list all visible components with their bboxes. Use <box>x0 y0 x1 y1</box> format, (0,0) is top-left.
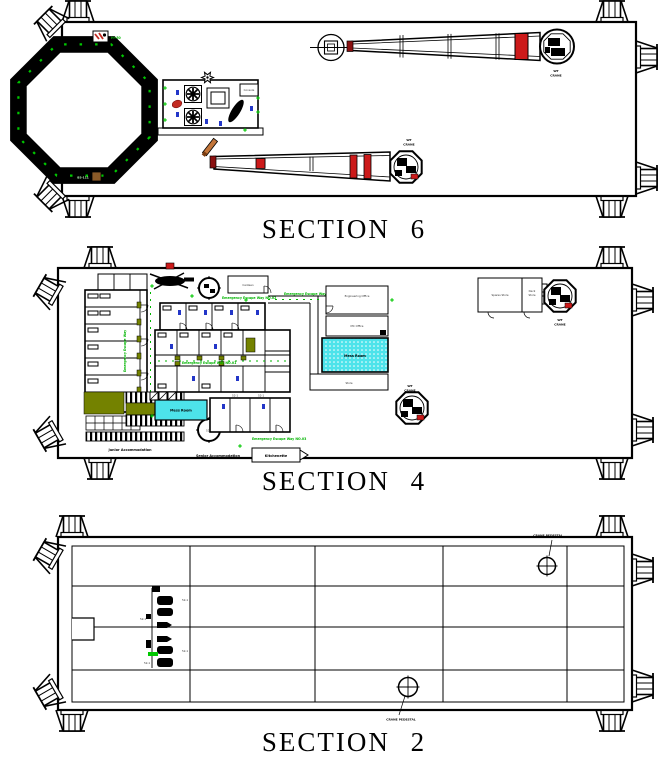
mooring-fitting <box>596 247 628 268</box>
boom-red-section <box>256 159 265 169</box>
mess-room-label: Mess Room <box>170 409 192 413</box>
section-6-title: SECTION 6 <box>262 214 426 244</box>
kitchenette-room: Kitchenette <box>252 448 308 462</box>
supply-fan-icon <box>185 86 202 103</box>
spares-store-label: Spares Store <box>491 293 508 297</box>
escape-way-label-vertical: Emergency Escape Way <box>123 329 127 372</box>
boom-tip <box>210 156 216 168</box>
mooring-fitting <box>56 710 88 731</box>
section-2: 52-1 52-1 52-1 52-1 CRANE PEDESTAL CRANE… <box>32 516 653 757</box>
crane-label: WT <box>407 384 413 388</box>
mooring-fitting <box>632 414 653 446</box>
svg-text:52-1: 52-1 <box>182 598 188 602</box>
valve <box>250 106 253 111</box>
mc-office-label: MC Office <box>351 324 364 328</box>
crane-label: CRANE <box>554 323 565 327</box>
junior-accommodation-label: Junior Accommodation <box>107 448 152 452</box>
mooring-fitting <box>62 196 94 217</box>
mooring-fitting <box>84 247 116 268</box>
store-label: Store <box>345 381 352 385</box>
cabinet-label: Console <box>244 88 255 92</box>
svg-text:52-1: 52-1 <box>258 394 264 398</box>
valve <box>205 119 208 124</box>
boom-red-section <box>350 155 357 178</box>
senior-accommodation-label: Senior Accommodation <box>196 454 241 458</box>
cabin-block-middle: Emergency Escape Way NO.01 <box>155 330 290 392</box>
mooring-fitting <box>84 458 116 479</box>
store-rooms: Spares Store Deck Store <box>478 278 547 318</box>
side-notch <box>72 618 94 640</box>
crane-turret <box>540 30 574 64</box>
section-2-title: SECTION 2 <box>262 727 426 757</box>
canteen-room: Canteen <box>228 276 271 293</box>
mooring-fitting <box>596 516 628 537</box>
deck-store-label: Store <box>528 293 535 297</box>
section-6: B5-111 H+50 Console <box>10 1 657 244</box>
mooring-fitting <box>636 162 657 194</box>
crane-pedestal-label: CRANE PEDESTAL <box>386 718 416 722</box>
mess-room-label: Mess Room <box>344 354 366 358</box>
mooring-fitting <box>632 284 653 316</box>
crane-label: CRANE <box>404 389 415 393</box>
crane-pedestal-label: CRANE PEDESTAL <box>533 534 563 538</box>
canteen-label: Canteen <box>242 283 254 287</box>
crane-label: CRANE <box>550 74 561 78</box>
escape-way-label: Emergency Escape Way NO.01 <box>182 361 236 365</box>
engineering-office-label: Engineering Office <box>345 294 370 298</box>
crane-turret <box>390 151 421 182</box>
boom-red-section <box>515 34 528 60</box>
mooring-fitting <box>62 1 94 22</box>
mooring-fitting <box>636 41 657 73</box>
helideck-code-label: B5-111 <box>77 176 88 180</box>
section-4: Emergency Escape Way <box>32 247 653 496</box>
escape-way-label: Emergency Escape Way NO.03 <box>252 437 306 441</box>
crane-label: WT <box>406 138 412 142</box>
crane-label: WT <box>553 69 559 73</box>
valve <box>176 90 179 95</box>
cabin-row-bottom: 52-1 52-1 <box>210 394 290 433</box>
mooring-fitting <box>596 196 628 217</box>
kitchenette-label: Kitchenette <box>265 454 288 458</box>
mess-room-left: Mess Room <box>155 400 207 420</box>
valve <box>219 121 222 126</box>
stairs <box>86 432 184 441</box>
boom-red-section <box>364 155 371 179</box>
mooring-fitting <box>596 710 628 731</box>
mooring-fitting <box>632 554 653 586</box>
svg-text:52-1: 52-1 <box>144 661 150 665</box>
helideck-marker-label: H+50 <box>111 36 122 40</box>
escape-way-label: Emergency Escape Way NO.02 <box>222 296 276 300</box>
svg-text:52-1: 52-1 <box>182 649 188 653</box>
mooring-fitting <box>632 670 653 702</box>
boom-tip <box>347 41 353 52</box>
mooring-fitting <box>56 516 88 537</box>
deck-plan-sheet: B5-111 H+50 Console <box>0 0 663 760</box>
deck-box <box>92 172 101 181</box>
mooring-fitting <box>596 458 628 479</box>
deck-plan-drawing: B5-111 H+50 Console <box>0 0 663 760</box>
helideck-octagon: B5-111 <box>10 36 158 184</box>
svg-text:52-1: 52-1 <box>232 394 238 398</box>
red-deck-item <box>166 263 174 269</box>
svg-text:52-1: 52-1 <box>140 617 146 621</box>
mooring-fitting <box>596 1 628 22</box>
section-4-title: SECTION 4 <box>262 466 426 496</box>
hatch-squares <box>150 392 176 400</box>
supply-fan-icon <box>185 109 202 126</box>
crane-label: WT <box>557 318 563 322</box>
valve <box>176 112 179 117</box>
crane-label: CRANE <box>403 143 414 147</box>
